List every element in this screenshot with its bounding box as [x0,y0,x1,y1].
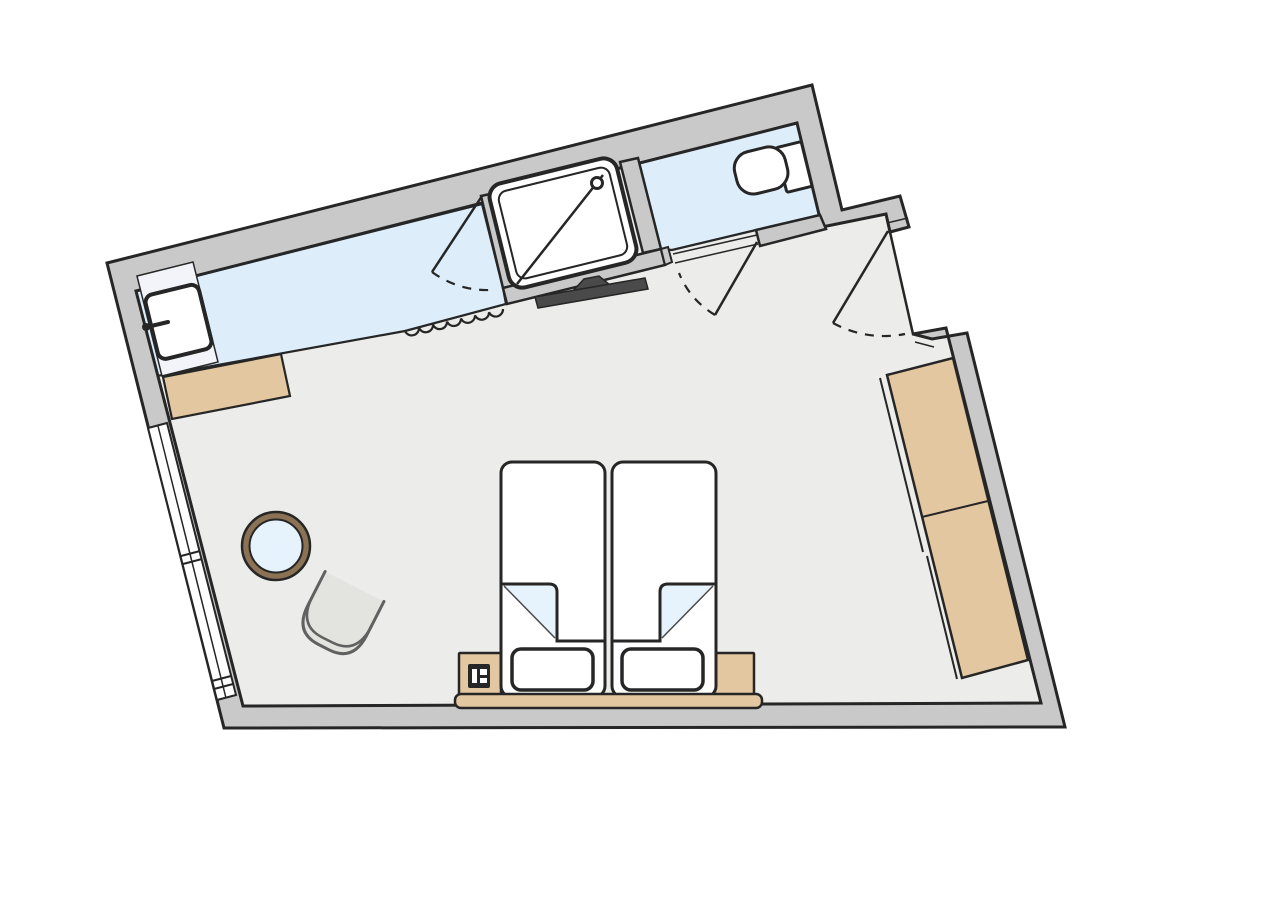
table-top [250,520,303,573]
telephone-key-2 [480,669,487,675]
telephone-key-1 [472,669,477,683]
telephone-body [468,664,490,688]
floorplan-stage [0,0,1288,900]
hotel-room-floor-plan [0,0,1288,900]
shower-drain [592,178,603,189]
pillow-left [512,649,593,690]
washbasin-faucet-knob [142,323,150,331]
headboard [455,694,762,708]
telephone-key-3 [480,678,487,683]
nightstand-right [712,653,754,696]
pillow-right [622,649,703,690]
